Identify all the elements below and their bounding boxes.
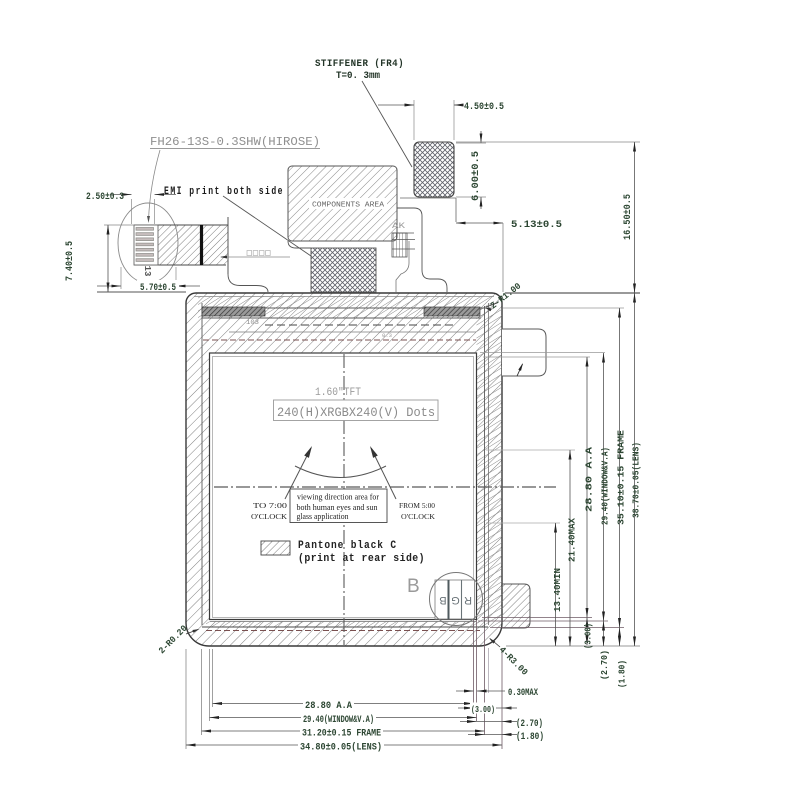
svg-text:21.40MAX: 21.40MAX [567,518,578,562]
svg-text:1.60″TFT: 1.60″TFT [315,387,361,399]
svg-text:28.80 A.A: 28.80 A.A [305,701,352,712]
svg-text:(1.80): (1.80) [516,731,544,743]
svg-text:TO 7:00: TO 7:00 [253,501,287,510]
svg-text:31.20±0.15 FRAME: 31.20±0.15 FRAME [302,729,381,740]
svg-text:103: 103 [246,319,259,326]
svg-text:(2.70): (2.70) [516,718,543,730]
svg-text:B: B [439,594,446,606]
svg-text:29.40(WINDOW&V.A): 29.40(WINDOW&V.A) [303,714,374,726]
svg-text:35.10±0.15 FRAME: 35.10±0.15 FRAME [616,429,627,525]
svg-text:R: R [464,594,472,606]
svg-text:B: B [407,576,420,597]
svg-text:T=0. 3mm: T=0. 3mm [336,71,380,82]
svg-text:FH26-13S-0.3SHW(HIROSE): FH26-13S-0.3SHW(HIROSE) [150,135,320,149]
svg-text:O'CLOCK: O'CLOCK [251,512,288,521]
svg-text:29.40(WINDOW&V.A): 29.40(WINDOW&V.A) [600,447,611,525]
svg-text:6.00±0.5: 6.00±0.5 [471,151,482,201]
svg-text:(print at rear side): (print at rear side) [298,553,425,565]
svg-text:38.70±0.05(LENS): 38.70±0.05(LENS) [631,442,642,518]
svg-text:13.40MIN: 13.40MIN [552,568,563,612]
svg-text:(3.00): (3.00) [471,705,495,715]
svg-text:13: 13 [142,266,152,277]
svg-text:glass application: glass application [297,511,350,521]
svg-text:viewing direction area for: viewing direction area for [297,492,379,502]
svg-text:FROM 5:00: FROM 5:00 [399,501,435,510]
svg-text:G: G [451,594,460,606]
svg-text:AK: AK [392,221,406,231]
svg-text:(3.00): (3.00) [583,623,594,649]
svg-text:28.80 A.A: 28.80 A.A [584,446,595,512]
svg-text:COMPONENTS AREA: COMPONENTS AREA [312,202,385,210]
svg-text:(2.70): (2.70) [599,650,610,680]
svg-text:2.50±0.3: 2.50±0.3 [86,192,124,203]
svg-text:0.30MAX: 0.30MAX [508,688,538,699]
svg-text:16.50±0.5: 16.50±0.5 [623,194,634,240]
svg-text:(1.80): (1.80) [617,660,628,688]
svg-text:5.13±0.5: 5.13±0.5 [511,220,562,231]
svg-text:240(H)XRGBX240(V) Dots: 240(H)XRGBX240(V) Dots [277,406,435,420]
svg-text:7.40±0.5: 7.40±0.5 [65,241,76,281]
svg-text:STIFFENER (FR4): STIFFENER (FR4) [315,58,404,70]
svg-text:Pantone black C: Pantone black C [298,540,397,552]
svg-text:0.3: 0.3 [382,333,392,339]
svg-text:O'CLOCK: O'CLOCK [401,512,436,521]
svg-text:34.80±0.05(LENS): 34.80±0.05(LENS) [300,742,382,754]
svg-text:4.50±0.5: 4.50±0.5 [464,102,504,113]
